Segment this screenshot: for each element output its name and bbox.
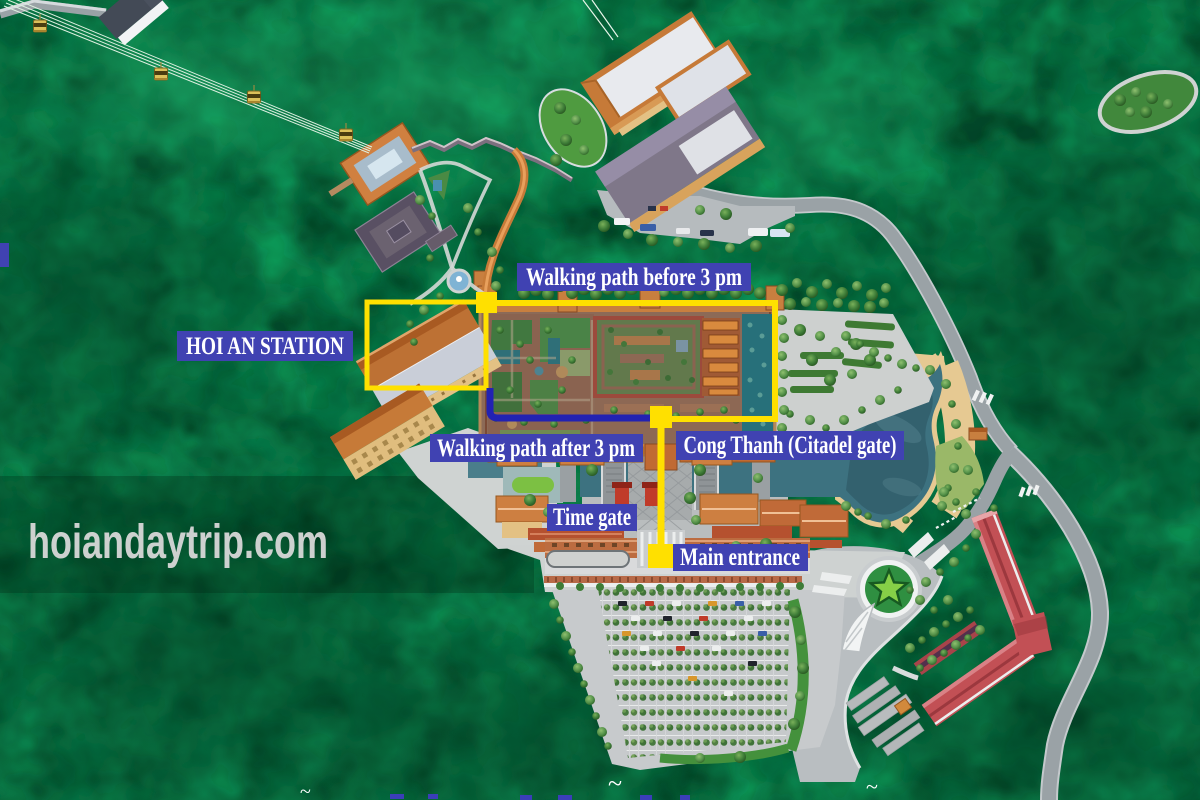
svg-text:Time gate: Time gate [553,504,631,531]
svg-text:~: ~ [300,781,311,800]
svg-text:~: ~ [608,769,622,798]
svg-text:Main entrance: Main entrance [680,544,800,571]
svg-text:hoiandaytrip.com: hoiandaytrip.com [28,516,328,569]
svg-text:HOI AN STATION: HOI AN STATION [186,333,344,360]
svg-text:~: ~ [866,774,878,799]
svg-text:Walking path before 3 pm: Walking path before 3 pm [526,264,742,291]
svg-text:Walking path after 3 pm: Walking path after 3 pm [437,435,635,462]
svg-text:Cong Thanh (Citadel gate): Cong Thanh (Citadel gate) [684,432,897,459]
